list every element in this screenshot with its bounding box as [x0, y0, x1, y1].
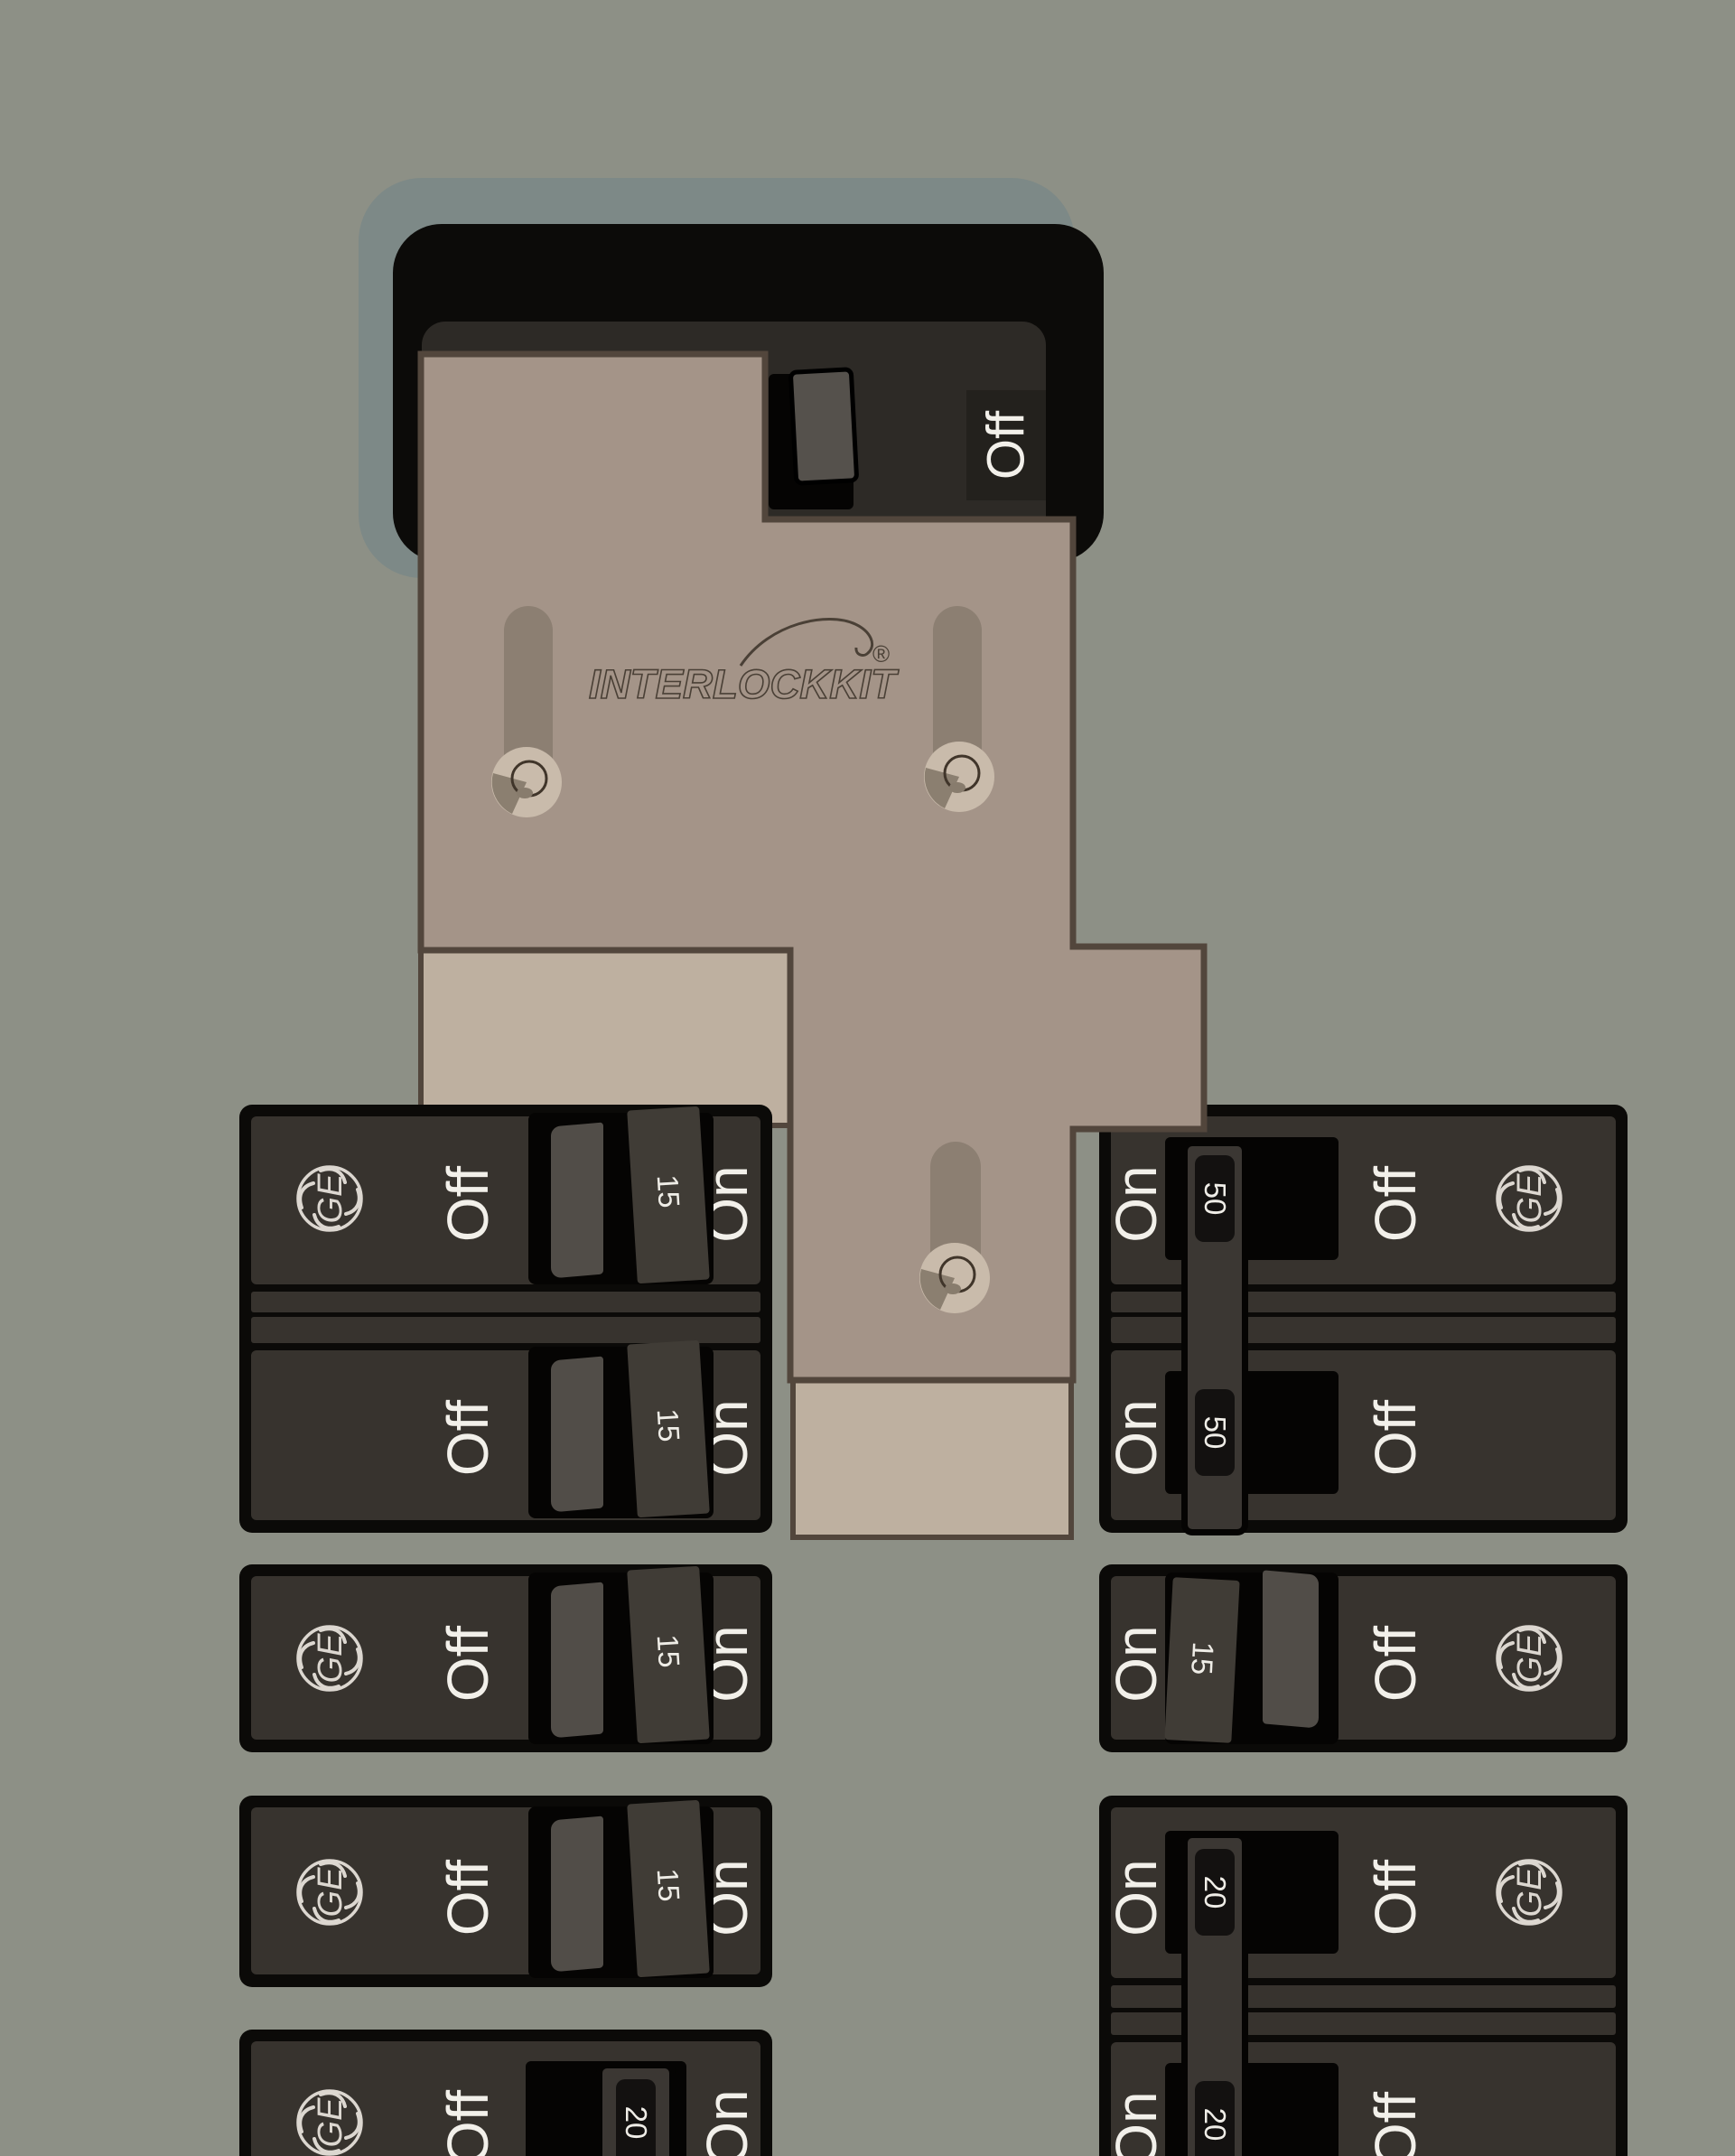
- plate-screw-center: [919, 1243, 990, 1313]
- registered-mark: ®: [872, 640, 890, 667]
- interlockkit-wordmark: INTERLOCKKIT: [589, 661, 900, 707]
- breaker-panel: Off GEOffOn 15OffOn 15 GEOffOn: [0, 0, 1735, 2156]
- interlock-slide-plate[interactable]: INTERLOCKKIT ®: [0, 0, 1735, 2156]
- interlock-plate-shape: [421, 354, 1204, 1380]
- plate-screw-left: [491, 747, 562, 817]
- plate-screw-right: [924, 742, 994, 812]
